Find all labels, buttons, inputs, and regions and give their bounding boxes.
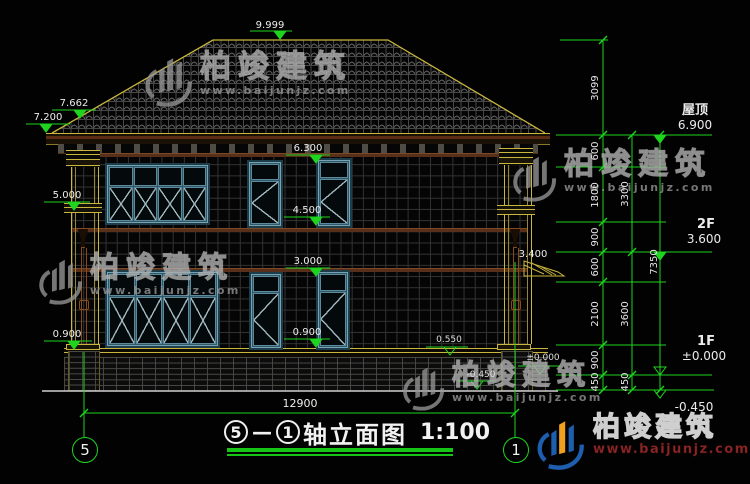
brand-logo-corner: 柏竣建筑 www.baijunjz.com (534, 414, 750, 470)
brand-name-text: 柏竣建筑 (593, 414, 750, 442)
brand-logo-icon (534, 414, 586, 470)
dim-600b: 600 (590, 247, 602, 287)
dim-width-12900: 12900 (270, 398, 330, 409)
level-label-eave: 7.200 (26, 113, 70, 123)
level-label-1f-win-top: 3.000 (286, 257, 330, 267)
level-label-awning: 3.400 (512, 250, 554, 260)
watermark-url-text: www.baijunjz.com (90, 284, 241, 297)
brand-url-text: www.baijunjz.com (593, 442, 750, 457)
dim-450b: 450 (620, 362, 632, 402)
dim-3099: 3099 (590, 68, 602, 108)
dim-450a: 450 (590, 362, 602, 402)
axis-bubble-5: 5 (72, 437, 98, 463)
level-label-1f-win-sill: 0.900 (284, 328, 330, 338)
awning (524, 261, 564, 276)
watermark-logo-icon (36, 252, 84, 306)
watermark-logo-icon (400, 360, 446, 412)
watermark-url-text: www.baijunjz.com (200, 84, 352, 97)
right-1f-label: 1F (686, 335, 726, 348)
dim-3600: 3600 (620, 294, 632, 334)
level-label-eave-upper: 7.662 (52, 99, 96, 109)
level-label-ridge: 9.999 (248, 21, 292, 31)
title-underline-thick (227, 448, 453, 452)
dim-1800: 1800 (590, 175, 602, 215)
watermark-left: 柏竣建筑 www.baijunjz.com (36, 252, 241, 306)
level-label-2f-win-sill: 4.500 (284, 206, 330, 216)
watermark-url-text: www.baijunjz.com (452, 391, 603, 404)
level-label-minus-small: -0.450 (458, 371, 504, 380)
dim-3300: 3300 (620, 174, 632, 214)
level-label-zero-small: ±0.000 (520, 354, 566, 363)
watermark-logo-icon (142, 50, 194, 108)
level-label-step: 0.550 (428, 336, 470, 345)
watermark-logo-icon (510, 148, 558, 204)
drawing-title: 5 — 1 轴立面图 1:100 (224, 417, 490, 447)
title-axis-circle-5: 5 (224, 420, 248, 444)
dim-2100: 2100 (590, 294, 602, 334)
right-2f-level: 3.600 (680, 233, 728, 245)
axis-number: 1 (511, 441, 521, 459)
cad-elevation-canvas: 柏竣建筑 www.baijunjz.com 柏竣建筑 www.baijunjz.… (0, 0, 750, 484)
level-label-left-sill: 0.900 (44, 330, 90, 340)
watermark-brand-text: 柏竣建筑 (200, 50, 352, 84)
watermark-right: 柏竣建筑 www.baijunjz.com (510, 148, 715, 204)
dim-7350: 7350 (649, 242, 661, 282)
axis-bubble-1: 1 (503, 437, 529, 463)
title-underline-thin (227, 454, 453, 456)
right-roof-level: 6.900 (672, 119, 718, 131)
right-2f-label: 2F (686, 218, 726, 231)
dim-600a: 600 (590, 131, 602, 171)
right-1f-level: ±0.000 (678, 350, 730, 362)
right-roof-label: 屋顶 (672, 104, 718, 117)
watermark-bottom: 柏竣建筑 www.baijunjz.com (400, 360, 603, 412)
axis-number: 5 (80, 441, 90, 459)
watermark-brand-text: 柏竣建筑 (564, 148, 715, 181)
title-axis-circle-1: 1 (276, 420, 300, 444)
title-scale: 1:100 (420, 420, 490, 445)
watermark-url-text: www.baijunjz.com (564, 181, 715, 194)
watermark-top: 柏竣建筑 www.baijunjz.com (142, 50, 352, 108)
title-text: 轴立面图 (303, 415, 407, 450)
level-label-pilaster-band: 5.000 (44, 191, 90, 201)
level-label-2f-win-top: 6.300 (286, 144, 330, 154)
watermark-brand-text: 柏竣建筑 (90, 252, 241, 284)
title-dash: — (252, 420, 272, 444)
